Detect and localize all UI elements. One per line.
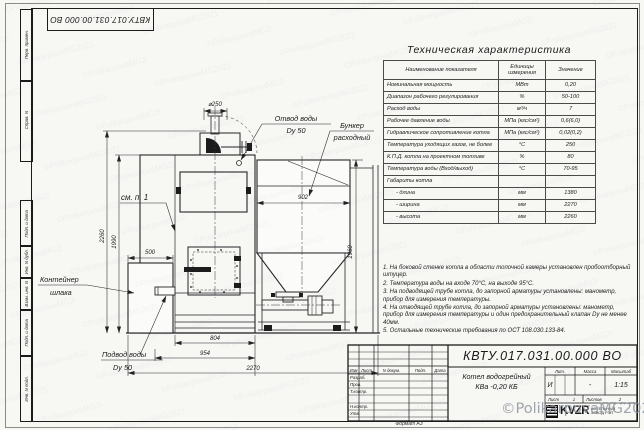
dim-boiler-height: 1990 <box>112 235 118 249</box>
tb-scale-label: Масштаб <box>605 367 637 375</box>
spec-cell: - ширина <box>384 200 499 212</box>
tb-lit-value: И <box>545 375 555 395</box>
water-outlet-size: Dу 50 <box>286 126 305 135</box>
spec-header-cell: Наименование показателя <box>384 61 499 80</box>
spec-cell: Габариты котла <box>384 176 499 188</box>
water-outlet-label: Отвод воды <box>275 114 318 123</box>
spec-cell: К.П.Д. котла на проектном топливе <box>384 152 499 164</box>
spec-cell: - длина <box>384 188 499 200</box>
slag-container-label: Контейнер <box>40 275 79 284</box>
fuel-bunker <box>257 160 378 333</box>
spec-cell: Рабочее давление воды <box>384 116 499 128</box>
spec-row: Диапазон рабочего регулирования%50-100 <box>384 92 596 104</box>
technical-characteristics: Техническая характеристика Наименование … <box>383 44 595 224</box>
spec-row: - длинамм1380 <box>384 188 596 200</box>
technical-notes: 1. На боковой стенке котла в области топ… <box>383 265 635 337</box>
note-item: 5. Остальные технические требования по О… <box>383 328 635 335</box>
spec-cell: мм <box>499 200 546 212</box>
spec-row: Расход водым³/ч7 <box>384 104 596 116</box>
spec-cell: °С <box>499 164 546 176</box>
spec-cell <box>499 176 546 188</box>
note-item: 4. На отводящей трубе котла, до запорной… <box>383 305 635 327</box>
see-note-label: см. п. 1 <box>121 193 148 202</box>
spec-cell: 250 <box>546 140 596 152</box>
spec-cell: Температура воды (Вход/выход) <box>384 164 499 176</box>
spec-cell: 0,02(0,2) <box>546 128 596 140</box>
spec-cell: мм <box>499 188 546 200</box>
bunker-label: Бункер <box>340 121 364 130</box>
spec-row: Номинальная мощностьМВт0,20 <box>384 80 596 92</box>
spec-header-row: Наименование показателя Единицы измерени… <box>384 61 596 80</box>
signature-watermark: ©PolikarpovaMG2021 <box>501 401 644 417</box>
spec-cell: МПа (кгс/см²) <box>499 116 546 128</box>
tb-product-name-2: КВа -0,20 КБ <box>448 381 545 391</box>
water-inlet-size: Dу 50 <box>113 363 132 372</box>
chimney <box>200 113 257 155</box>
tb-doc-number: КВТУ.017.031.00.000 ВО <box>450 345 635 366</box>
spec-cell: МВт <box>499 80 546 92</box>
spec-cell: 0,6(6,0) <box>546 116 596 128</box>
note-item: 3. На подводящей трубе котла, до запорно… <box>383 289 635 304</box>
screw-feeder <box>262 292 333 315</box>
dim-total-height: 2260 <box>100 229 106 244</box>
spec-cell: 0,20 <box>546 80 596 92</box>
furnace-door <box>184 247 241 295</box>
format-label: Формат А3 <box>386 421 432 427</box>
spec-cell: 1380 <box>546 188 596 200</box>
spec-cell: МПа (кгс/см²) <box>499 128 546 140</box>
tb-product-name: Котел водогрейный <box>448 371 545 381</box>
dim-chimney: ⌀250 <box>208 102 222 108</box>
slag-container <box>128 263 175 333</box>
spec-table: Наименование показателя Единицы измерени… <box>383 60 596 224</box>
tb-mass-value: - <box>575 375 605 395</box>
tb-row-tkontr: Т.контр. <box>350 388 374 395</box>
dim-container-width: 500 <box>145 250 156 256</box>
dim-base-width: 804 <box>210 336 221 342</box>
spec-row: Температура уходящих газов, не более°С25… <box>384 140 596 152</box>
tb-lit-label: Лит. <box>545 367 575 375</box>
spec-row: Рабочее давление водыМПа (кгс/см²)0,6(6,… <box>384 116 596 128</box>
spec-cell: Диапазон рабочего регулирования <box>384 92 499 104</box>
spec-cell: 7 <box>546 104 596 116</box>
spec-cell: % <box>499 152 546 164</box>
spec-row: - высотамм2260 <box>384 212 596 224</box>
note-item: 2. Температура воды на входе 70°С, на вы… <box>383 281 635 288</box>
spec-table-title: Техническая характеристика <box>383 44 595 56</box>
dim-mid-width: 954 <box>200 351 211 357</box>
tb-col-izm: Изм <box>348 366 359 374</box>
spec-cell: м³/ч <box>499 104 546 116</box>
spec-cell: % <box>499 92 546 104</box>
bunker-label-2: расходный <box>333 133 371 142</box>
tb-row-prov: Пров. <box>350 381 374 388</box>
water-inlet-label: Подвод воды <box>102 350 147 359</box>
spec-row: Гидравлическое сопротивление котлаМПа (к… <box>384 128 596 140</box>
spec-cell: Номинальная мощность <box>384 80 499 92</box>
spec-cell: мм <box>499 212 546 224</box>
spec-row: Габариты котла <box>384 176 596 188</box>
spec-header-cell: Единицы измерения <box>499 61 546 80</box>
tb-col-data: Дата <box>432 366 448 374</box>
spec-cell: - высота <box>384 212 499 224</box>
note-item: 1. На боковой стенке котла в области топ… <box>383 265 635 280</box>
dim-bunker-width: 902 <box>298 195 309 201</box>
dim-bunker-height: 1960 <box>348 245 354 259</box>
spec-cell: 80 <box>546 152 596 164</box>
spec-header-cell: Значение <box>546 61 596 80</box>
tb-row-utv: Утв. <box>350 410 374 417</box>
spec-cell: Гидравлическое сопротивление котла <box>384 128 499 140</box>
dim-total-width: 2270 <box>245 366 260 372</box>
spec-cell: Расход воды <box>384 104 499 116</box>
spec-cell: 70-95 <box>546 164 596 176</box>
tb-col-podp: Подп. <box>409 366 432 374</box>
spec-row: К.П.Д. котла на проектном топливе%80 <box>384 152 596 164</box>
spec-row: - ширинамм2270 <box>384 200 596 212</box>
tb-col-list: Лист <box>359 366 374 374</box>
spec-row: Температура воды (Вход/выход)°С70-95 <box>384 164 596 176</box>
spec-cell <box>546 176 596 188</box>
tb-mass-label: Масса <box>575 367 605 375</box>
spec-cell: 2270 <box>546 200 596 212</box>
slag-container-label-2: шлака <box>50 288 72 297</box>
spec-cell: Температура уходящих газов, не более <box>384 140 499 152</box>
tb-row-razrab: Разраб. <box>350 374 374 381</box>
spec-cell: °С <box>499 140 546 152</box>
tb-row-nkontr: Н.контр. <box>350 403 374 410</box>
tb-scale-value: 1:15 <box>605 375 637 395</box>
spec-cell: 50-100 <box>546 92 596 104</box>
tb-col-ndoc: N докум. <box>374 366 409 374</box>
spec-cell: 2260 <box>546 212 596 224</box>
